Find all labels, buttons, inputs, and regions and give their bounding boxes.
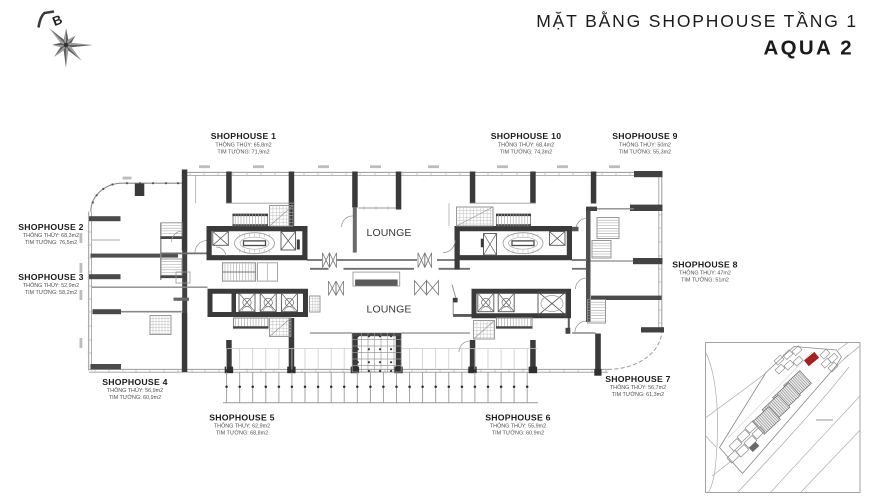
svg-text:SHOPHOUSE 1: SHOPHOUSE 1 (211, 131, 277, 141)
svg-text:SHOPHOUSE 3: SHOPHOUSE 3 (18, 272, 84, 282)
svg-text:THÔNG THỦY: 56,7m2: THÔNG THỦY: 56,7m2 (610, 384, 666, 391)
svg-text:B: B (50, 12, 64, 29)
svg-text:TIM TƯỜNG: 71,9m2: TIM TƯỜNG: 71,9m2 (217, 148, 269, 155)
svg-text:SHOPHOUSE 4: SHOPHOUSE 4 (102, 377, 168, 387)
svg-text:SHOPHOUSE 6: SHOPHOUSE 6 (485, 412, 551, 422)
svg-text:SHOPHOUSE 2: SHOPHOUSE 2 (18, 222, 84, 232)
svg-text:TIM TƯỜNG: 58,2m2: TIM TƯỜNG: 58,2m2 (25, 289, 77, 296)
svg-text:TIM TƯỜNG: 68,8m2: TIM TƯỜNG: 68,8m2 (216, 430, 268, 437)
svg-text:TIM TƯỜNG: 60,9m2: TIM TƯỜNG: 60,9m2 (492, 430, 544, 437)
svg-text:TIM TƯỜNG: 76,5m2: TIM TƯỜNG: 76,5m2 (25, 239, 77, 246)
svg-text:SHOPHOUSE 10: SHOPHOUSE 10 (491, 131, 562, 141)
svg-text:LOUNGE: LOUNGE (367, 227, 412, 239)
svg-text:THÔNG THỦY: 56,9m2: THÔNG THỦY: 56,9m2 (107, 387, 163, 394)
svg-text:LOUNGE: LOUNGE (367, 304, 412, 316)
svg-text:TIM TƯỜNG: 74,3m2: TIM TƯỜNG: 74,3m2 (500, 148, 552, 155)
svg-text:SHOPHOUSE 8: SHOPHOUSE 8 (672, 259, 738, 269)
svg-text:SHOPHOUSE 9: SHOPHOUSE 9 (612, 131, 678, 141)
svg-text:TIM TƯỜNG: 55,3m2: TIM TƯỜNG: 55,3m2 (619, 148, 671, 155)
svg-text:THÔNG THỦY: 62,9m2: THÔNG THỦY: 62,9m2 (214, 423, 270, 430)
svg-text:THÔNG THỦY: 52,9m2: THÔNG THỦY: 52,9m2 (23, 282, 79, 289)
svg-text:AQUA 2: AQUA 2 (764, 36, 855, 59)
svg-text:TIM TƯỜNG: 60,9m2: TIM TƯỜNG: 60,9m2 (109, 394, 161, 401)
svg-text:SHOPHOUSE 5: SHOPHOUSE 5 (209, 412, 275, 422)
svg-text:THÔNG THỦY: 65,8m2: THÔNG THỦY: 65,8m2 (215, 141, 271, 148)
svg-text:THÔNG THỦY: 68,3m2: THÔNG THỦY: 68,3m2 (23, 232, 79, 239)
svg-text:THÔNG THỦY: 55,9m2: THÔNG THỦY: 55,9m2 (490, 423, 546, 430)
svg-text:MẶT BẰNG SHOPHOUSE TẦNG 1: MẶT BẰNG SHOPHOUSE TẦNG 1 (536, 10, 858, 31)
svg-text:TIM TƯỜNG: 51m2: TIM TƯỜNG: 51m2 (681, 277, 729, 284)
svg-text:THÔNG THỦY: 50m2: THÔNG THỦY: 50m2 (619, 141, 671, 148)
svg-text:TIM TƯỜNG: 61,3m2: TIM TƯỜNG: 61,3m2 (612, 391, 664, 398)
svg-text:THÔNG THỦY: 47m2: THÔNG THỦY: 47m2 (679, 270, 731, 277)
svg-text:SHOPHOUSE 7: SHOPHOUSE 7 (605, 374, 671, 384)
svg-text:THÔNG THỦY: 68,4m2: THÔNG THỦY: 68,4m2 (498, 141, 554, 148)
